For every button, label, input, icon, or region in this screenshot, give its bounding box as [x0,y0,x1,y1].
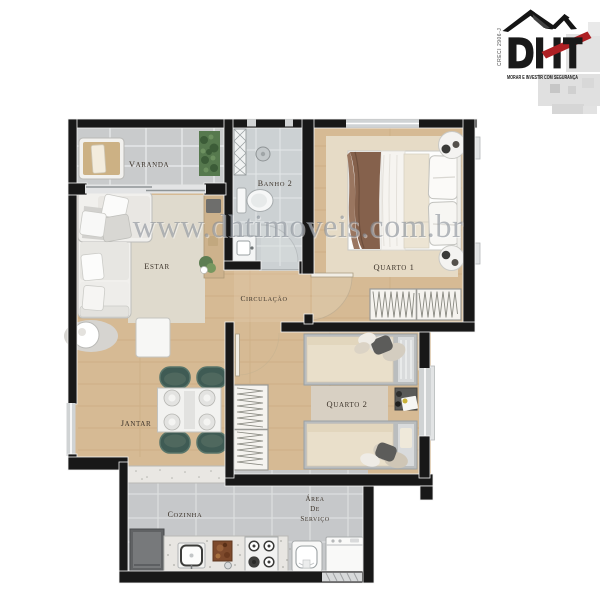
svg-text:CIRCULAÇÃO: CIRCULAÇÃO [240,294,287,303]
svg-text:DE: DE [310,505,320,513]
svg-text:VARANDA: VARANDA [129,159,169,169]
svg-text:www.dhtimoveis.com.br: www.dhtimoveis.com.br [133,209,464,245]
svg-text:BANHO 2: BANHO 2 [258,179,293,188]
svg-text:CRECI 2906-J: CRECI 2906-J [497,28,503,66]
svg-text:QUARTO 1: QUARTO 1 [374,262,415,272]
svg-text:JANTAR: JANTAR [121,418,151,428]
svg-text:QUARTO 2: QUARTO 2 [327,399,368,409]
svg-text:SERVIÇO: SERVIÇO [300,515,329,523]
svg-text:MORAR E INVESTIR COM SEGURANÇA: MORAR E INVESTIR COM SEGURANÇA [507,75,578,81]
svg-text:COZINHA: COZINHA [168,510,203,519]
svg-text:ÁREA: ÁREA [305,495,324,503]
svg-text:ESTAR: ESTAR [144,261,170,271]
